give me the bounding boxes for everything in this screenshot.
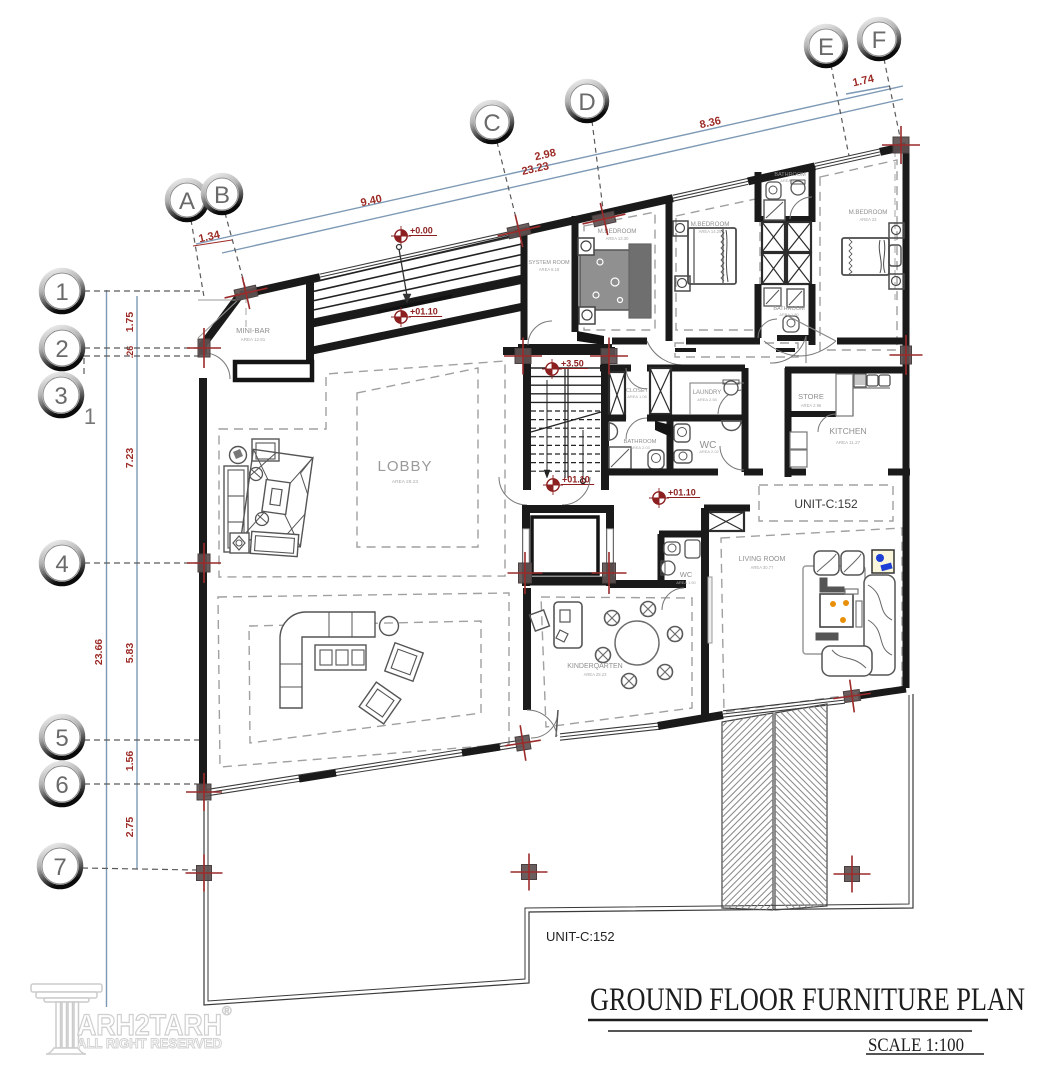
- svg-text:AREA 2.02: AREA 2.02: [699, 449, 719, 454]
- svg-text:AREA 2.96: AREA 2.96: [801, 403, 822, 408]
- svg-text:GROUND FLOOR FURNITURE PLAN: GROUND FLOOR FURNITURE PLAN: [590, 982, 1025, 1018]
- svg-text:+01.10: +01.10: [410, 307, 438, 317]
- svg-text:F: F: [872, 27, 887, 54]
- svg-text:D: D: [578, 89, 595, 116]
- svg-text:1.75: 1.75: [124, 312, 136, 333]
- svg-text:STORE: STORE: [798, 392, 824, 401]
- svg-text:AREA 2.03: AREA 2.03: [630, 445, 650, 450]
- svg-text:AREA 11.27: AREA 11.27: [836, 440, 861, 445]
- svg-text:7.23: 7.23: [124, 448, 136, 469]
- svg-text:SCALE 1:100: SCALE 1:100: [868, 1035, 964, 1056]
- svg-text:AREA 13.30: AREA 13.30: [606, 236, 629, 241]
- svg-text:AREA 30.77: AREA 30.77: [751, 565, 774, 570]
- svg-text:ALL RIGHT RESERVED: ALL RIGHT RESERVED: [77, 1035, 222, 1051]
- svg-text:B: B: [214, 182, 230, 209]
- svg-text:M.BEDROOM: M.BEDROOM: [598, 228, 637, 235]
- svg-text:AREA 14.25: AREA 14.25: [699, 229, 722, 234]
- svg-text:AREA 28.23: AREA 28.23: [392, 479, 418, 485]
- svg-text:AREA 1.08: AREA 1.08: [627, 394, 647, 399]
- svg-text:LAUNDRY: LAUNDRY: [693, 390, 722, 396]
- svg-text:1.56: 1.56: [124, 751, 136, 772]
- svg-text:LOBBY: LOBBY: [377, 458, 432, 475]
- svg-text:M.BEDROOM: M.BEDROOM: [849, 209, 888, 216]
- svg-text:MINI-BAR: MINI-BAR: [236, 326, 270, 335]
- svg-text:A: A: [179, 188, 195, 215]
- svg-text:KINDERQARTEN: KINDERQARTEN: [567, 663, 623, 670]
- svg-text:1: 1: [84, 404, 96, 429]
- svg-text:7: 7: [53, 854, 66, 881]
- svg-text:AREA 12.81: AREA 12.81: [241, 337, 266, 342]
- svg-text:WC: WC: [680, 570, 693, 579]
- svg-text:AREA 23: AREA 23: [860, 217, 878, 222]
- svg-text:AREA 1.50: AREA 1.50: [676, 580, 696, 585]
- svg-text:2.75: 2.75: [124, 817, 136, 838]
- svg-text:5.83: 5.83: [124, 643, 136, 664]
- svg-text:SYSTEM ROOM: SYSTEM ROOM: [528, 260, 570, 266]
- svg-text:2: 2: [55, 336, 68, 363]
- svg-text:M.BEDROOM: M.BEDROOM: [691, 221, 730, 228]
- svg-text:LIVING ROOM: LIVING ROOM: [739, 556, 786, 563]
- svg-text:C: C: [483, 110, 500, 137]
- svg-text:+3.50: +3.50: [561, 359, 584, 369]
- svg-text:5: 5: [55, 725, 68, 752]
- svg-text:6: 6: [55, 772, 68, 799]
- svg-text:3: 3: [54, 383, 67, 410]
- svg-text:KITCHEN: KITCHEN: [829, 426, 866, 436]
- svg-text:1: 1: [55, 279, 68, 306]
- svg-text:+01.10: +01.10: [562, 475, 590, 485]
- svg-text:E: E: [818, 34, 834, 61]
- svg-text:AREA 2.58: AREA 2.58: [697, 397, 717, 402]
- svg-text:®: ®: [222, 1003, 232, 1018]
- svg-text:+01.10: +01.10: [668, 488, 696, 498]
- svg-text:+0.00: +0.00: [410, 226, 433, 236]
- svg-text:4: 4: [55, 551, 68, 578]
- svg-text:AREA 28.23: AREA 28.23: [584, 672, 607, 677]
- svg-text:UNIT-C:152: UNIT-C:152: [546, 929, 615, 944]
- svg-text:23.66: 23.66: [93, 639, 105, 665]
- svg-text:UNIT-C:152: UNIT-C:152: [794, 497, 858, 511]
- svg-text:AREA 8.19: AREA 8.19: [539, 267, 560, 272]
